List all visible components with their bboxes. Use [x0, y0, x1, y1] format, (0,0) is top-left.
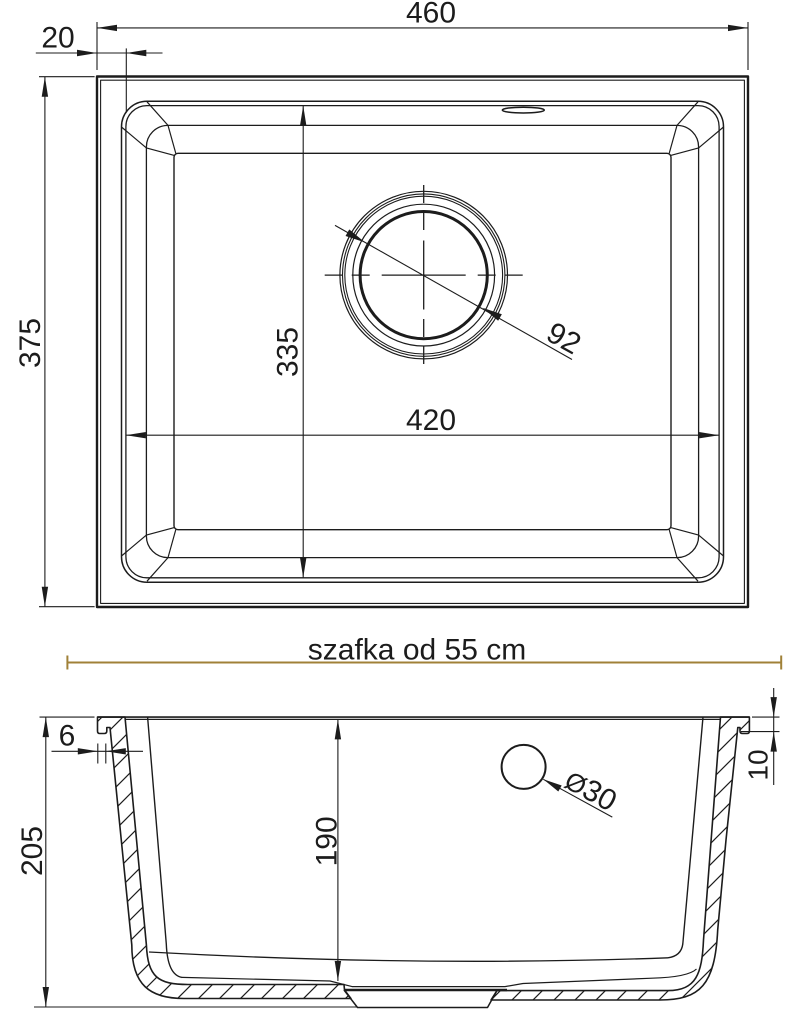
svg-text:375: 375 [14, 318, 47, 368]
svg-text:6: 6 [59, 720, 76, 753]
svg-text:460: 460 [406, 0, 456, 30]
svg-text:szafka od 55 cm: szafka od 55 cm [308, 634, 526, 667]
svg-text:20: 20 [41, 21, 74, 54]
svg-text:335: 335 [272, 327, 305, 377]
svg-text:205: 205 [16, 826, 49, 876]
svg-text:10: 10 [743, 749, 774, 780]
svg-text:420: 420 [406, 404, 456, 437]
svg-text:190: 190 [310, 816, 343, 866]
